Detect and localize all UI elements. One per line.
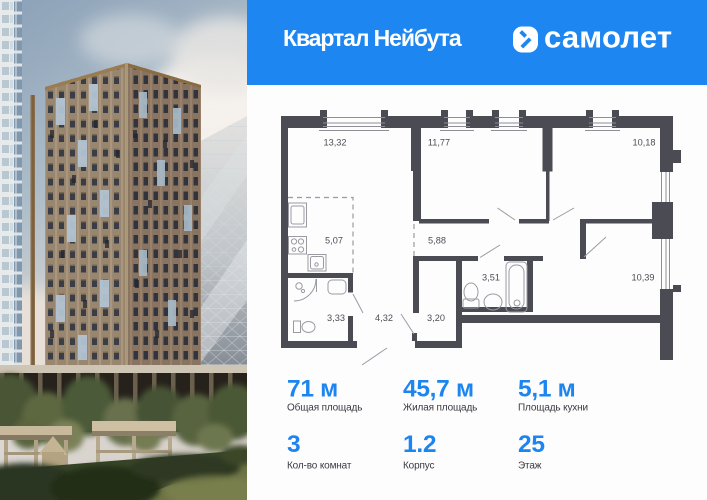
svg-text:3,51: 3,51: [482, 273, 500, 283]
svg-text:10,39: 10,39: [632, 273, 655, 283]
svg-text:Квартал Нейбута: Квартал Нейбута: [283, 25, 462, 51]
svg-text:5,07: 5,07: [325, 236, 343, 246]
svg-text:4,32: 4,32: [375, 313, 393, 323]
svg-text:Площадь кухни: Площадь кухни: [518, 403, 588, 414]
svg-text:71 м: 71 м: [287, 376, 338, 403]
svg-text:Этаж: Этаж: [518, 461, 542, 472]
svg-text:11,77: 11,77: [428, 138, 450, 148]
svg-text:25: 25: [518, 431, 545, 458]
svg-text:1.2: 1.2: [403, 431, 436, 458]
svg-text:13,32: 13,32: [324, 138, 347, 148]
svg-text:самолет: самолет: [544, 20, 672, 55]
svg-text:Кол-во комнат: Кол-во комнат: [287, 461, 352, 472]
svg-text:Общая площадь: Общая площадь: [287, 402, 362, 414]
svg-text:3,20: 3,20: [427, 313, 445, 323]
svg-text:Корпус: Корпус: [403, 461, 435, 472]
svg-text:Жилая площадь: Жилая площадь: [403, 403, 477, 414]
svg-text:5,1 м: 5,1 м: [518, 376, 576, 403]
svg-text:3: 3: [287, 431, 300, 458]
svg-text:5,88: 5,88: [428, 236, 446, 246]
svg-text:3,33: 3,33: [327, 313, 345, 323]
svg-text:10,18: 10,18: [633, 138, 656, 148]
svg-text:45,7 м: 45,7 м: [403, 376, 474, 403]
